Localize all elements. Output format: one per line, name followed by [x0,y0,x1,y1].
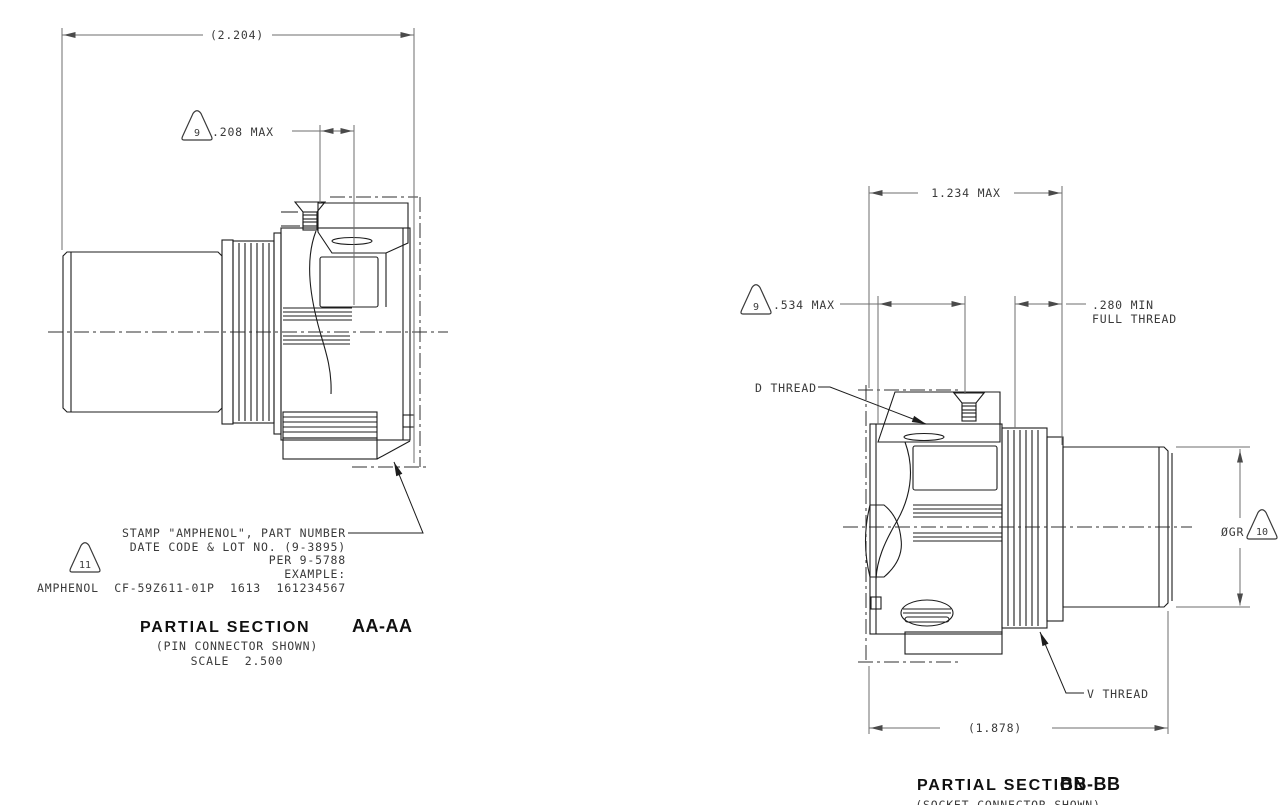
bb-dim-overall-text: (1.878) [968,721,1022,735]
bb-texts: 1.234 MAX 9 .534 MAX .280 MIN FULL THREA… [741,186,1277,805]
bb-body [870,424,1002,634]
bb-geometry [866,392,1173,654]
aa-texts: (2.204) 9 .208 MAX 11 STAMP "AMPHENOL", … [37,28,412,668]
bb-dim-280-text-line2: FULL THREAD [1092,312,1177,326]
view-bb: 1.234 MAX 9 .534 MAX .280 MIN FULL THREA… [741,186,1277,805]
aa-note-line-5: AMPHENOL CF-59Z611-01P 1613 161234567 [37,581,346,595]
bb-flag-10-text: 10 [1256,527,1268,538]
aa-note-line-2: DATE CODE & LOT NO. (9-3895) [130,540,346,554]
aa-note-line-4: EXAMPLE: [284,567,346,581]
bb-d-thread-label: D THREAD [755,381,817,395]
aa-bottom-diagonal [377,441,410,459]
bb-cavity [913,446,997,490]
bb-knurl-band [1047,437,1063,621]
view-aa: (2.204) 9 .208 MAX 11 STAMP "AMPHENOL", … [37,28,448,668]
aa-geometry [63,202,414,459]
bb-v-thread-label: V THREAD [1087,687,1149,701]
aa-mid-bands [283,308,352,344]
aa-note-line-1: STAMP "AMPHENOL", PART NUMBER [122,526,346,540]
bb-mid-bands [913,505,1002,541]
bb-insert-curve [876,442,910,579]
bb-v-thread-leader [1040,632,1084,693]
bb-flag-9-text: 9 [753,302,759,313]
bb-dim-534-text: .534 MAX [773,298,835,312]
bb-section-subtitle: (SOCKET CONNECTOR SHOWN) [915,798,1100,805]
aa-flag-9-text: 9 [194,128,200,139]
aa-lower-thread [283,412,377,438]
aa-section-title: PARTIAL SECTION [140,619,310,636]
bb-screw-icon [954,393,984,421]
aa-cavity [320,257,378,307]
bb-dim-dia-text: ØGR [1221,525,1244,539]
aa-section-subtitle: (PIN CONNECTOR SHOWN) [156,639,318,653]
aa-dim-208-text: .208 MAX [212,125,274,139]
aa-step-lines [281,212,300,226]
bb-grommet [866,505,902,577]
aa-note-leader [348,462,423,533]
bb-bottom-block [905,632,1002,654]
drawing-sheet: (2.204) 9 .208 MAX 11 STAMP "AMPHENOL", … [0,0,1285,805]
aa-flag-11-text: 11 [79,560,91,571]
aa-note-line-3: PER 9-5788 [269,553,346,567]
bb-seal [904,434,944,441]
aa-body [281,228,410,440]
aa-section-id: AA-AA [352,616,413,636]
aa-bottom-block [283,438,377,459]
bb-extension-lines [869,186,1250,734]
engineering-drawing: (2.204) 9 .208 MAX 11 STAMP "AMPHENOL", … [0,0,1285,805]
aa-seal [332,238,372,245]
bb-dimensions [818,186,1250,734]
bb-side-screw-icon [901,600,953,626]
bb-thread-ridges [1008,430,1038,626]
aa-section-scale: SCALE 2.500 [191,654,284,668]
aa-flange [274,233,281,434]
aa-extension-lines [62,28,414,463]
bb-dim-280-text-line1: .280 MIN [1092,298,1154,312]
bb-section-id: BB-BB [1060,774,1121,794]
aa-dim-overall-text: (2.204) [210,28,264,42]
bb-thread-band [1002,428,1047,628]
bb-dim-width-text: 1.234 MAX [931,186,1001,200]
aa-body-notch [403,415,414,427]
aa-lower-thread-lines [283,417,377,432]
aa-dimensions [62,28,423,533]
